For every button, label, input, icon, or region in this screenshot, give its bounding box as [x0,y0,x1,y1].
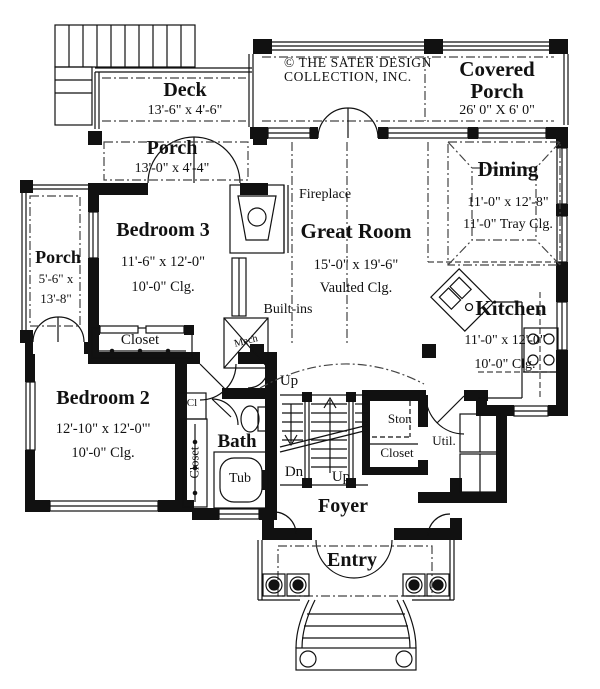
porch-top-label: Porch [147,138,198,159]
porch-left-label: Porch [35,248,81,267]
dn-label: Dn [285,465,303,481]
cl-label: Cl [187,398,197,410]
bedroom3-label: Bedroom 3 [116,220,210,241]
great-room-label: Great Room [301,220,412,242]
built-ins-label: Built-ins [263,303,312,318]
util-label: Util. [432,434,455,448]
kitchen-label: Kitchen [475,297,546,319]
porch-left-dims1: 5'-6" x [39,272,74,286]
dining-dims: 11'-0" x 12'-8" [467,196,548,211]
deck-dims: 13'-6" x 4'-6" [148,104,223,119]
bedroom3-dims: 11'-6" x 12'-0" [121,255,205,270]
kitchen-counters [428,262,556,398]
covered-porch-label: Covered Porch [459,58,534,102]
washer-dryer-fixture [460,414,500,492]
toilet-fixture [241,406,267,432]
bedroom3-ceiling: 10'-0" Clg. [131,280,194,295]
kitchen-dims: 11'-0" x 12'-0" [464,334,545,349]
entry-label: Entry [327,550,377,571]
bath-label: Bath [217,432,256,452]
great-room-dims: 15'-0" x 19'-6" [314,258,399,273]
porch-top-dims: 13'-0" x 4'-4" [135,162,210,177]
closet-hall-label: Closet [188,447,201,479]
deck-label: Deck [163,80,206,101]
foyer-label: Foyer [318,496,368,517]
bedroom2-ceiling: 10'-0" Clg. [71,446,134,461]
fireplace-label: Fireplace [299,188,351,203]
copyright-text: © THE SATER DESIGN COLLECTION, INC. [284,56,480,84]
covered-porch-dims: 26' 0" X 6' 0" [459,104,535,119]
stor-label: Stor. [388,412,412,426]
closet-stor-label: Closet [380,446,413,460]
fireplace-fixture [230,185,288,253]
up-top-label: Up [280,374,298,390]
floor-plan: © THE SATER DESIGN COLLECTION, INC. Cove… [0,0,600,689]
porch-left-dims2: 13'-8" [40,292,71,306]
entry-steps [296,600,416,670]
tub-label: Tub [229,472,251,487]
bedroom2-label: Bedroom 2 [56,388,150,409]
built-ins-fixture [232,258,246,316]
bedroom2-dims: 12'-10" x 12'-0"' [56,422,151,437]
kitchen-ceiling: 10'-0" Clg. [474,358,535,373]
entry-columns [263,574,449,596]
great-room-ceiling: Vaulted Clg. [320,281,393,296]
up-bottom-label: Up [332,470,350,486]
dining-ceiling: 11'-0" Tray Clg. [463,218,553,233]
dining-label: Dining [478,158,539,180]
closet-bedroom3-label: Closet [121,333,159,349]
